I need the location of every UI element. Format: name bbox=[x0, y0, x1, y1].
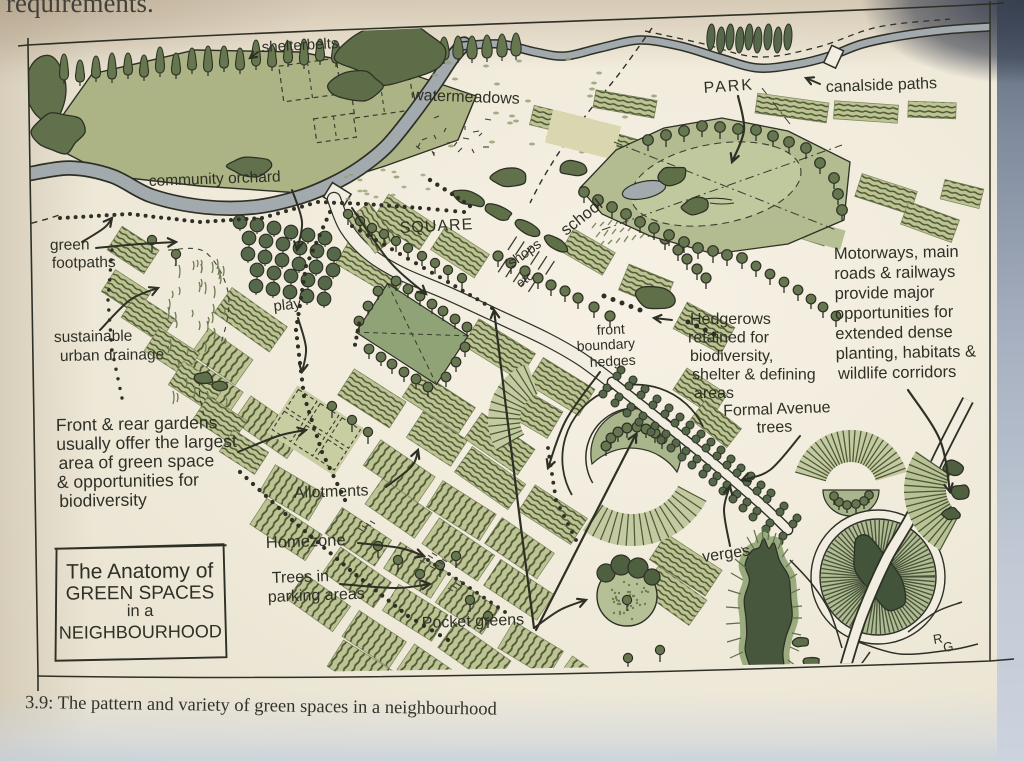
svg-text:shelterbelts: shelterbelts bbox=[261, 35, 339, 56]
svg-text:parking areas: parking areas bbox=[268, 586, 365, 606]
svg-text:green: green bbox=[50, 236, 90, 254]
svg-text:3.9: The pattern and variety o: 3.9: The pattern and variety of green sp… bbox=[25, 693, 498, 720]
svg-text:Hedgerowsretained forbiodivers: Hedgerowsretained forbiodiversity,shelte… bbox=[688, 311, 816, 402]
svg-text:urban drainage: urban drainage bbox=[60, 346, 165, 365]
svg-text:hedges: hedges bbox=[589, 352, 636, 370]
svg-text:play: play bbox=[273, 295, 303, 315]
svg-text:in a: in a bbox=[127, 602, 155, 620]
svg-text:SQUARE: SQUARE bbox=[399, 216, 473, 237]
svg-text:Homezone: Homezone bbox=[266, 531, 346, 552]
svg-text:PARK: PARK bbox=[703, 77, 754, 97]
svg-text:G: G bbox=[942, 638, 955, 655]
svg-text:canalside paths: canalside paths bbox=[826, 75, 938, 96]
svg-text:The Anatomy of: The Anatomy of bbox=[66, 559, 213, 583]
svg-text:requirements.: requirements. bbox=[6, 0, 154, 18]
svg-text:footpaths: footpaths bbox=[52, 254, 116, 272]
svg-text:etc: etc bbox=[513, 268, 536, 291]
svg-text:Pocket greens: Pocket greens bbox=[422, 611, 525, 632]
svg-text:Front & rear gardensusually of: Front & rear gardensusually offer the la… bbox=[56, 412, 238, 511]
svg-text:sustainable: sustainable bbox=[54, 328, 133, 346]
svg-text:Motorways, mainroads & railway: Motorways, mainroads & railwaysprovide m… bbox=[834, 243, 977, 383]
svg-text:Trees in: Trees in bbox=[272, 568, 330, 587]
svg-text:NEIGHBOURHOOD: NEIGHBOURHOOD bbox=[59, 621, 222, 642]
svg-text:Allotments: Allotments bbox=[294, 482, 369, 502]
